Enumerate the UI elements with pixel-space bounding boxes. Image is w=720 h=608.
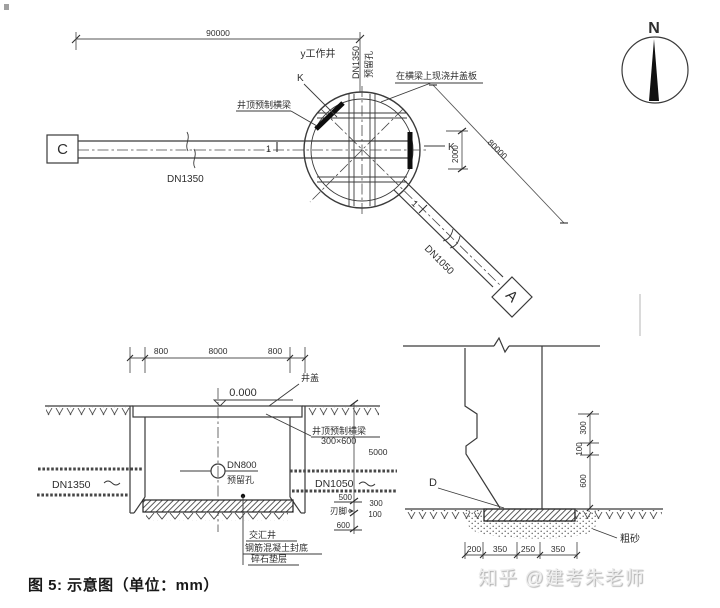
dim-200: 200 [467,544,481,554]
dim-80000-value: 80000 [486,137,510,161]
dim-v100: 100 [575,442,584,456]
figure-caption: 图 5: 示意图（单位：mm） [28,574,219,595]
well-cover-leader [269,384,299,406]
section-beam-size: 300×600 [321,436,356,446]
dim-350-a: 350 [493,544,507,554]
dim-350-b: 350 [551,544,565,554]
cast-cover-label: 在横梁上现浇井盖板 [396,70,477,81]
drawing-page: 90000 y工作井 DN1350 预留孔 [0,0,720,608]
dim-v600: 600 [579,474,588,488]
dim-100-section: 100 [368,510,382,519]
well-cover-slab [133,406,302,417]
wall-outer-profile [465,348,500,508]
well-cover-label: 井盖 [301,372,319,383]
pipe-dn1350-label: DN1350 [167,174,204,185]
work-well-label: y工作井 [301,47,336,60]
dim-detail-right: 300 100 600 [575,411,599,511]
plan-view: 90000 y工作井 DN1350 预留孔 [47,20,688,317]
dn1350-top-label: DN1350 [351,46,361,79]
section-beam-label: 井顶预制横梁 [312,425,366,436]
gravel-teeth [146,512,288,521]
north-label: N [648,20,660,37]
precast-beam-bar [316,103,343,129]
coarse-sand-label: 粗砂 [620,532,640,545]
section-mark-left: 1 [266,144,271,154]
pipe-dn1050-label: DN1050 [422,243,456,277]
dim-v300: 300 [579,421,588,435]
dn800-label: DN800 [227,460,257,471]
elevation-mark: 0.000 [214,387,293,406]
well-walls [130,406,305,513]
dim-depth-chain: 5000 500 300 刃脚 100 600 [330,400,388,534]
node-c-label: C [57,141,68,158]
section-dn1050-label: DN1050 [315,478,354,490]
bottom-seal-slab [143,500,293,512]
dim-600-section: 600 [337,521,351,530]
section-dn1350-label: DN1350 [52,479,91,491]
dn800-hole: DN800 预留孔 [180,460,258,485]
dim-top-chain: 800 8000 800 [127,346,308,373]
watermark: 知乎 @建考朱老师 [478,563,645,590]
reserved-hole-top-label: 预留孔 [363,51,374,78]
dim-2000-value: 2000 [451,145,460,163]
section-view: 800 8000 800 0.000 井盖 [37,346,397,565]
dim-detail-bottom: 200 350 250 350 [462,542,580,559]
north-arrow-icon: N [622,20,688,103]
seal-strip [484,509,575,521]
coarse-sand-leader [593,529,617,538]
precast-beam-label: 井顶预制横梁 [237,99,291,110]
dim-250: 250 [521,544,535,554]
blade-foot-label: 刃脚 [330,506,347,516]
page-artifact [4,4,9,10]
dim-80000: 80000 [429,85,568,223]
dim-90000-value: 90000 [206,28,230,38]
schematic-svg: 90000 y工作井 DN1350 预留孔 [0,0,720,608]
dim-5000: 5000 [369,447,388,457]
dim-300-section: 300 [369,499,383,508]
d-mark-label: D [429,477,437,489]
dim-500: 500 [339,493,353,502]
detail-view: D 粗砂 200 350 250 350 [403,338,663,559]
gravel-cushion-label: 碎石垫层 [251,553,287,564]
k-left-label: K [297,73,304,84]
dim-8000: 8000 [209,346,228,356]
junction-well-label: 交汇井 [249,529,276,540]
dim-90000: 90000 [72,28,364,92]
dim-800-left: 800 [154,346,168,356]
reserved-hole-label: 预留孔 [227,474,254,485]
dim-800-right: 800 [268,346,282,356]
cast-cover-leader [381,83,431,102]
elevation-value: 0.000 [229,387,257,399]
concrete-seal-label: 钢筋混凝土封底 [245,542,308,553]
